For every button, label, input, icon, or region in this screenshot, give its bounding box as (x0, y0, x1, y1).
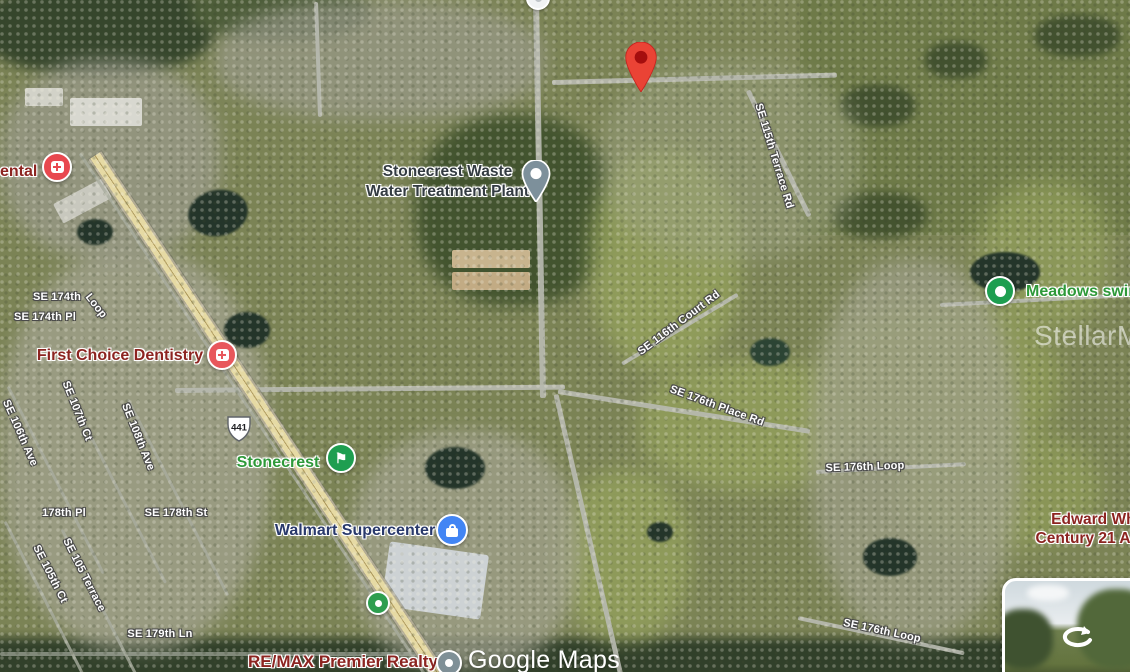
place-label-walmart[interactable]: Walmart Supercenter (275, 522, 435, 540)
building (70, 98, 142, 126)
health-icon[interactable] (42, 152, 72, 182)
poi-dot-icon[interactable] (436, 650, 462, 672)
terrain-residential (215, 0, 545, 120)
stellar-mls-watermark: StellarMLS (1034, 320, 1130, 352)
pond (425, 447, 485, 489)
treatment-bed (452, 272, 530, 290)
place-label-meadows[interactable]: Meadows swim (1026, 283, 1130, 301)
google-maps-watermark: Google Maps (468, 646, 620, 672)
satellite-map[interactable]: SE 174th Loop SE 174th Pl SE 106th Ave S… (0, 0, 1130, 672)
recreation-icon[interactable] (985, 276, 1015, 306)
destination-pin[interactable] (624, 42, 658, 92)
golf-icon[interactable]: ⚑ (326, 443, 356, 473)
street-label: SE 179th Ln (127, 628, 192, 640)
pond (863, 538, 917, 576)
street-label: 178th Pl (42, 507, 86, 519)
shopping-bag-icon[interactable] (436, 514, 468, 546)
pond (647, 522, 673, 542)
place-label-remax[interactable]: RE/MAX Premier Realty (248, 652, 438, 672)
treatment-bed (452, 250, 530, 268)
terrain-residential (810, 260, 1020, 640)
place-label-waste-plant[interactable]: Stonecrest Waste Water Treatment Plant (360, 162, 535, 202)
street-view-thumbnail[interactable] (1002, 578, 1130, 672)
utility-pin-icon[interactable] (521, 160, 551, 202)
street-label: SE 178th St (145, 507, 208, 519)
edward-whitman-line1: Edward Whitm (975, 510, 1130, 529)
place-label-dentistry[interactable]: First Choice Dentistry (37, 347, 203, 365)
building (25, 88, 63, 106)
terrain-trees (925, 42, 987, 78)
street-label: SE 174th (33, 291, 81, 303)
health-icon[interactable] (207, 340, 237, 370)
tree (1002, 609, 1053, 669)
pond (77, 219, 113, 245)
route-shield-441: 441 (224, 414, 254, 444)
poi-dot-icon (526, 0, 550, 10)
place-label-edward-whitman[interactable]: Edward Whitm Century 21 Alton C (975, 510, 1130, 549)
terrain-trees (1035, 15, 1120, 57)
edward-whitman-line2: Century 21 Alton C (975, 529, 1130, 548)
poi-dot-icon[interactable] (366, 591, 390, 615)
place-label-stonecrest[interactable]: Stonecrest (237, 454, 320, 472)
street-label: SE 174th Pl (14, 311, 76, 323)
svg-text:441: 441 (231, 423, 248, 434)
pond (750, 338, 790, 366)
place-label-dental-partial[interactable]: ental (0, 163, 37, 181)
cloud (1027, 585, 1069, 601)
pano-rotate-icon (1057, 623, 1097, 653)
